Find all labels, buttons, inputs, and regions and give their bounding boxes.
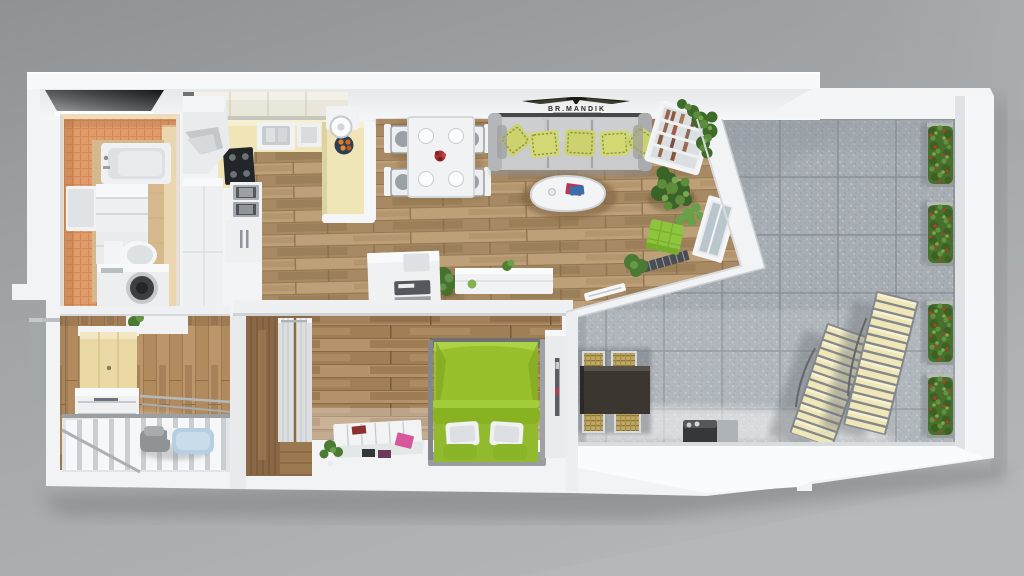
svg-text:BR.MANDIK: BR.MANDIK <box>548 106 606 113</box>
